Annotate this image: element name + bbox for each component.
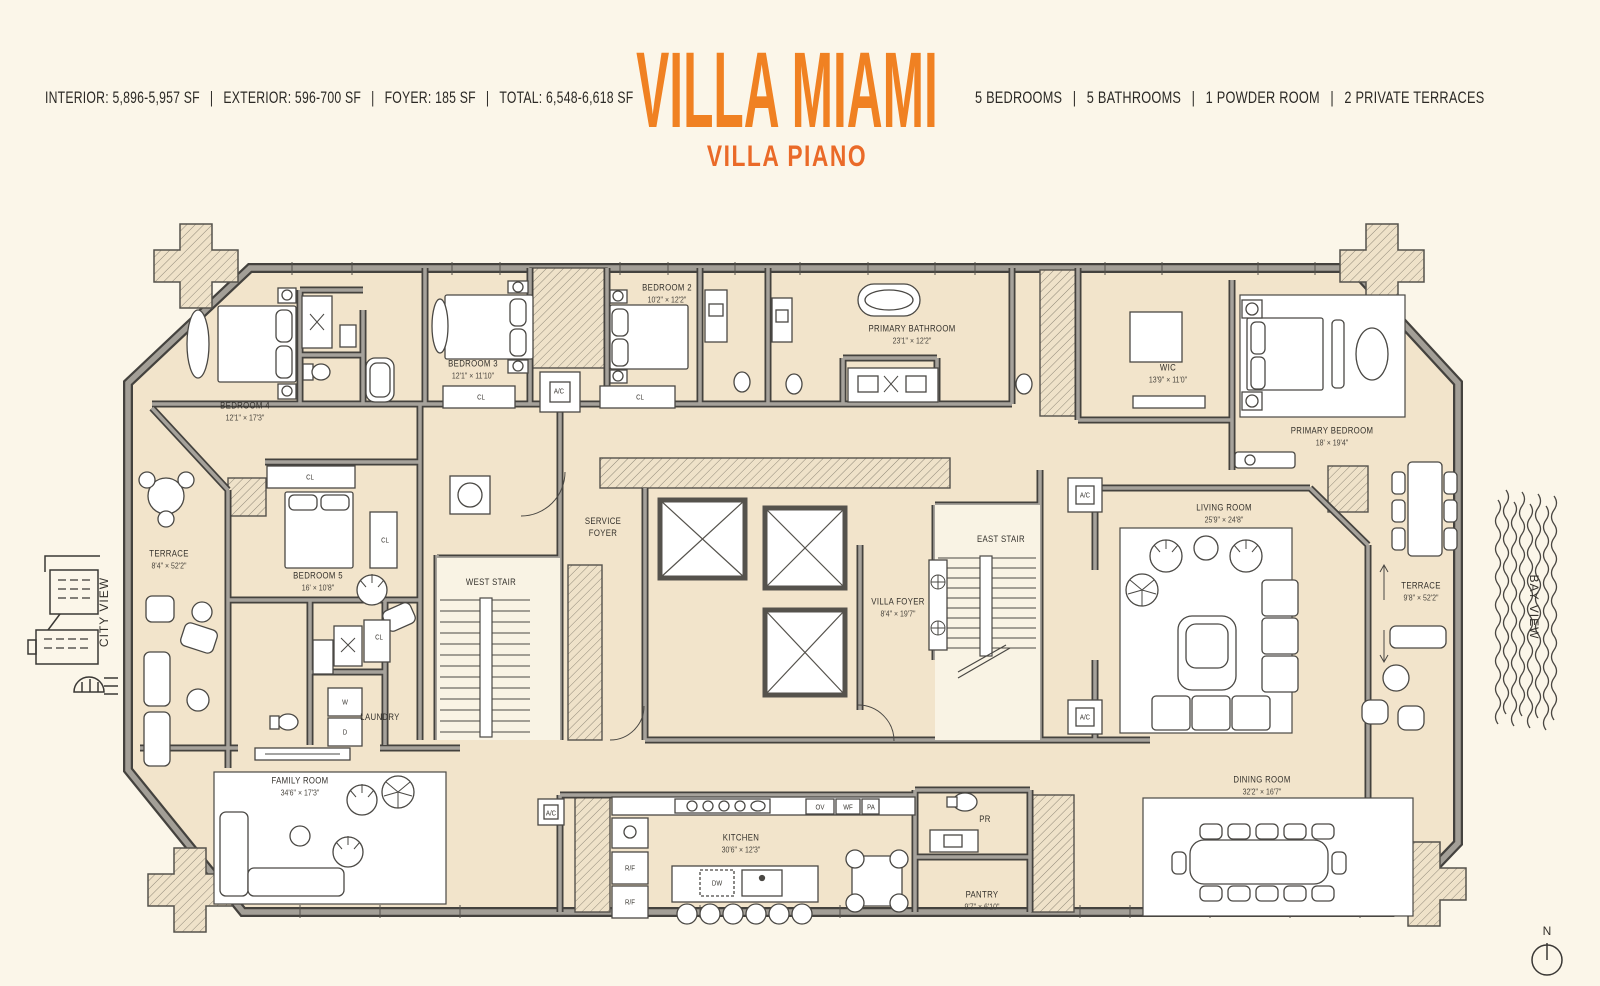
bay-view-waves [1496, 490, 1557, 730]
floor-plan: BEDROOM 412'1" × 17'3"BEDROOM 312'1" × 1… [0, 0, 1600, 986]
floor-plan-page: INTERIOR: 5,896-5,957 SF|EXTERIOR: 596-7… [0, 0, 1600, 986]
east-stair-steps [935, 505, 1040, 740]
west-stair-steps [437, 558, 560, 740]
floor-plan-svg [0, 0, 1600, 986]
city-view-icon [28, 556, 118, 694]
compass-icon [1532, 943, 1562, 975]
villa-foyer-doors [929, 560, 947, 650]
